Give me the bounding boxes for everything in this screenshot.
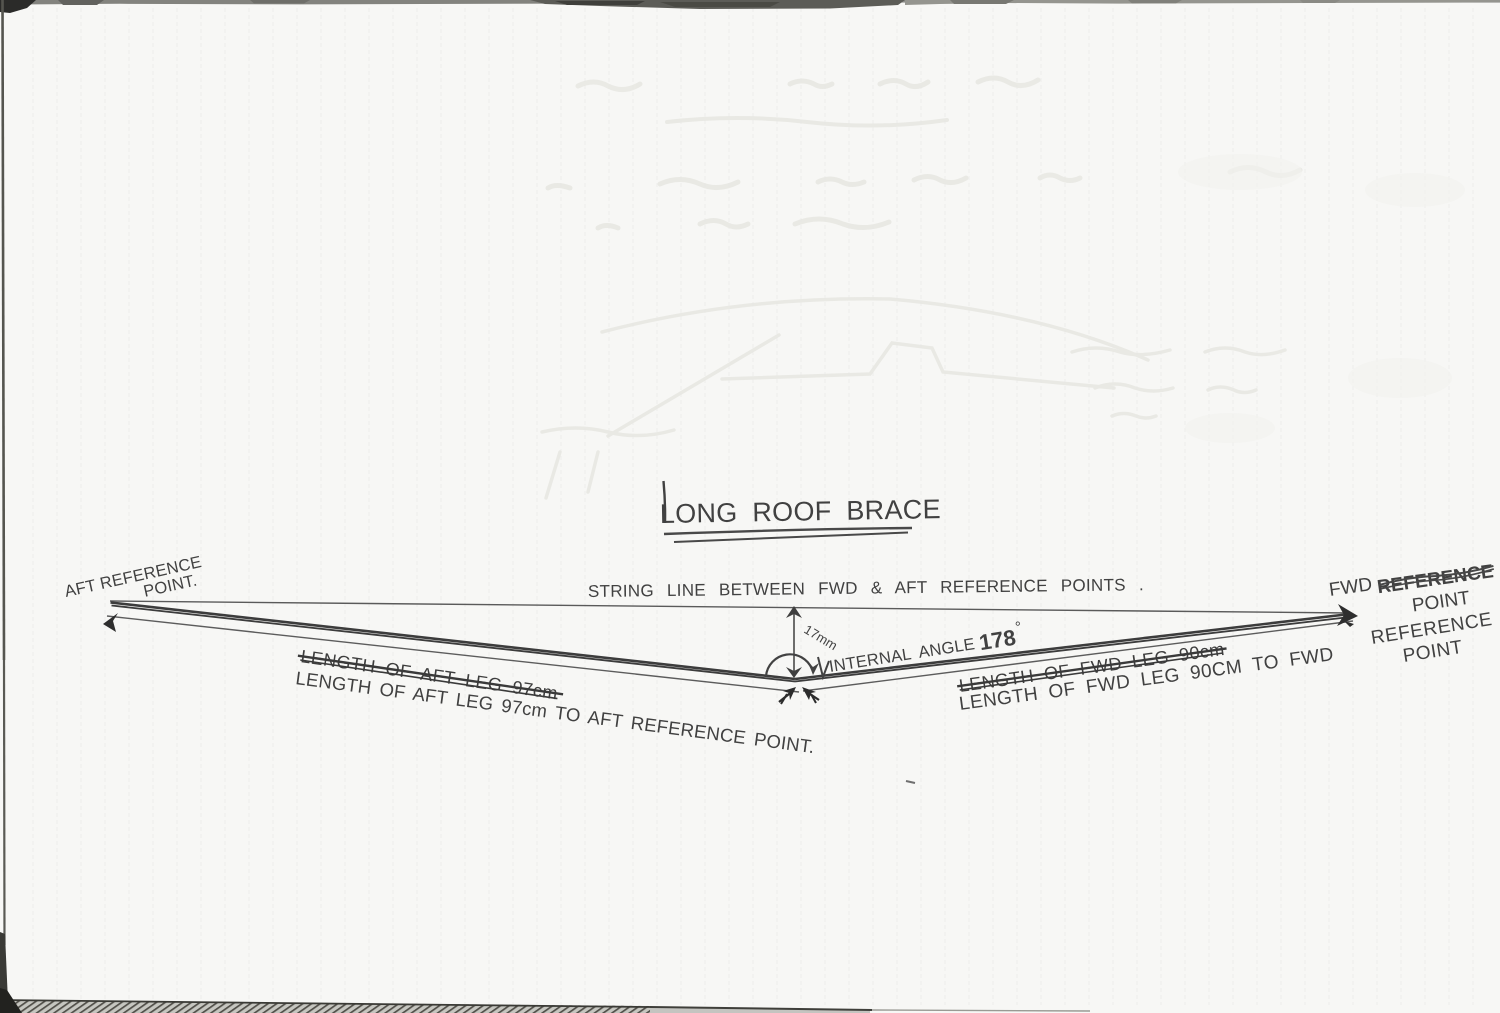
svg-text:LONG ROOF BRACE: LONG ROOF BRACE [660,494,942,529]
